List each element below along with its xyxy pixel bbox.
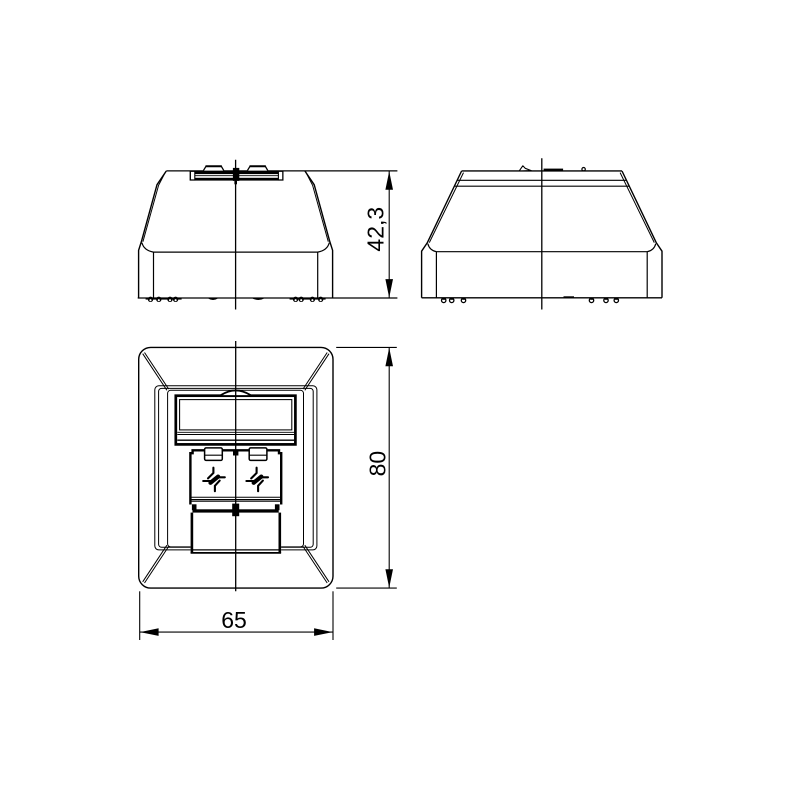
svg-text:80: 80 <box>364 451 390 477</box>
svg-text:42,3: 42,3 <box>363 207 389 252</box>
svg-text:65: 65 <box>221 607 247 633</box>
